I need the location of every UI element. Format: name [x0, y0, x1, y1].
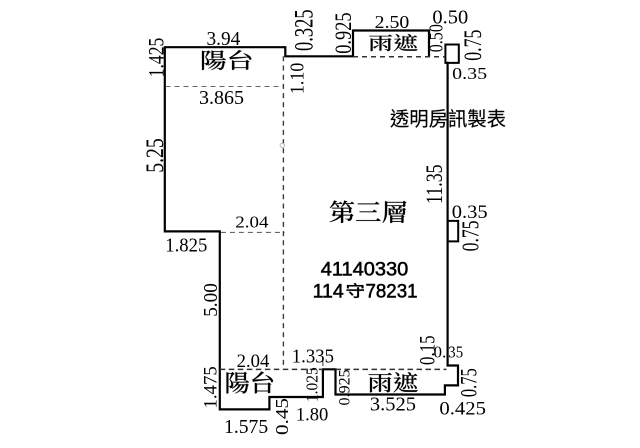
svg-text:3.525: 3.525	[370, 394, 416, 415]
svg-text:1.475: 1.475	[201, 366, 222, 408]
svg-text:1.825: 1.825	[165, 235, 207, 256]
svg-text:0.325: 0.325	[290, 9, 319, 51]
svg-text:1.575: 1.575	[224, 417, 268, 438]
svg-text:1.10: 1.10	[287, 63, 308, 94]
svg-text:3.94: 3.94	[207, 28, 241, 50]
svg-text:1.425: 1.425	[143, 38, 168, 78]
svg-text:0.425: 0.425	[439, 399, 486, 420]
svg-text:2.04: 2.04	[237, 351, 270, 372]
svg-text:0.50: 0.50	[425, 24, 447, 52]
svg-text:41140330: 41140330	[321, 258, 409, 280]
svg-text:2.04: 2.04	[235, 213, 269, 232]
svg-text:114: 114	[313, 281, 344, 303]
svg-text:11.35: 11.35	[422, 164, 447, 204]
svg-text:5.25: 5.25	[142, 138, 169, 173]
svg-text:0.925: 0.925	[335, 369, 354, 405]
svg-text:0.75: 0.75	[457, 220, 484, 251]
svg-text:0.75: 0.75	[457, 368, 482, 397]
svg-text:1.80: 1.80	[296, 406, 328, 426]
svg-text:1.335: 1.335	[292, 346, 334, 367]
svg-text:0.15: 0.15	[415, 335, 440, 365]
svg-text:2.50: 2.50	[375, 12, 410, 32]
svg-text:0.35: 0.35	[452, 202, 488, 223]
svg-text:0.925: 0.925	[331, 12, 356, 53]
svg-text:0.35: 0.35	[452, 64, 487, 83]
svg-text:5.00: 5.00	[200, 283, 222, 317]
svg-text:0.75: 0.75	[460, 30, 487, 61]
svg-text:0.45: 0.45	[272, 398, 292, 435]
svg-text:1.025: 1.025	[303, 367, 322, 402]
svg-text:3.865: 3.865	[199, 88, 244, 109]
svg-text:35: 35	[448, 343, 463, 362]
svg-text:78231: 78231	[366, 281, 418, 303]
